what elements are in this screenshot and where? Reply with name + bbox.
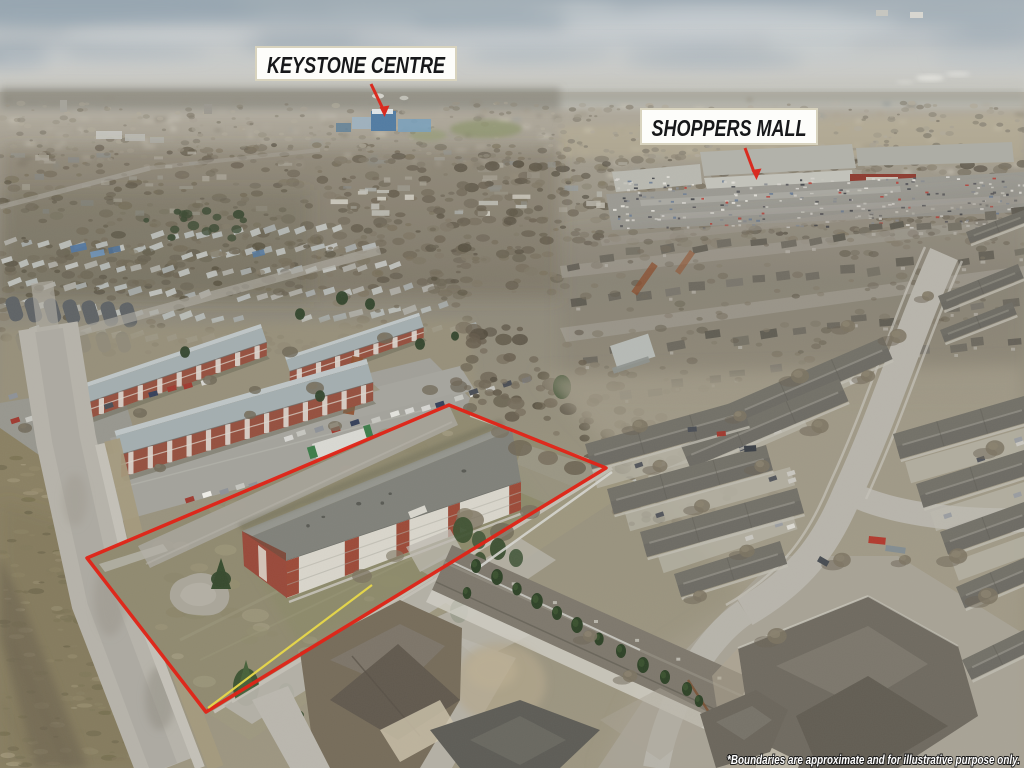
svg-text:SHOPPERS MALL: SHOPPERS MALL xyxy=(652,115,807,141)
svg-text:KEYSTONE CENTRE: KEYSTONE CENTRE xyxy=(267,52,446,78)
svg-text:*Boundaries are approximate an: *Boundaries are approximate and for illu… xyxy=(727,752,1020,767)
